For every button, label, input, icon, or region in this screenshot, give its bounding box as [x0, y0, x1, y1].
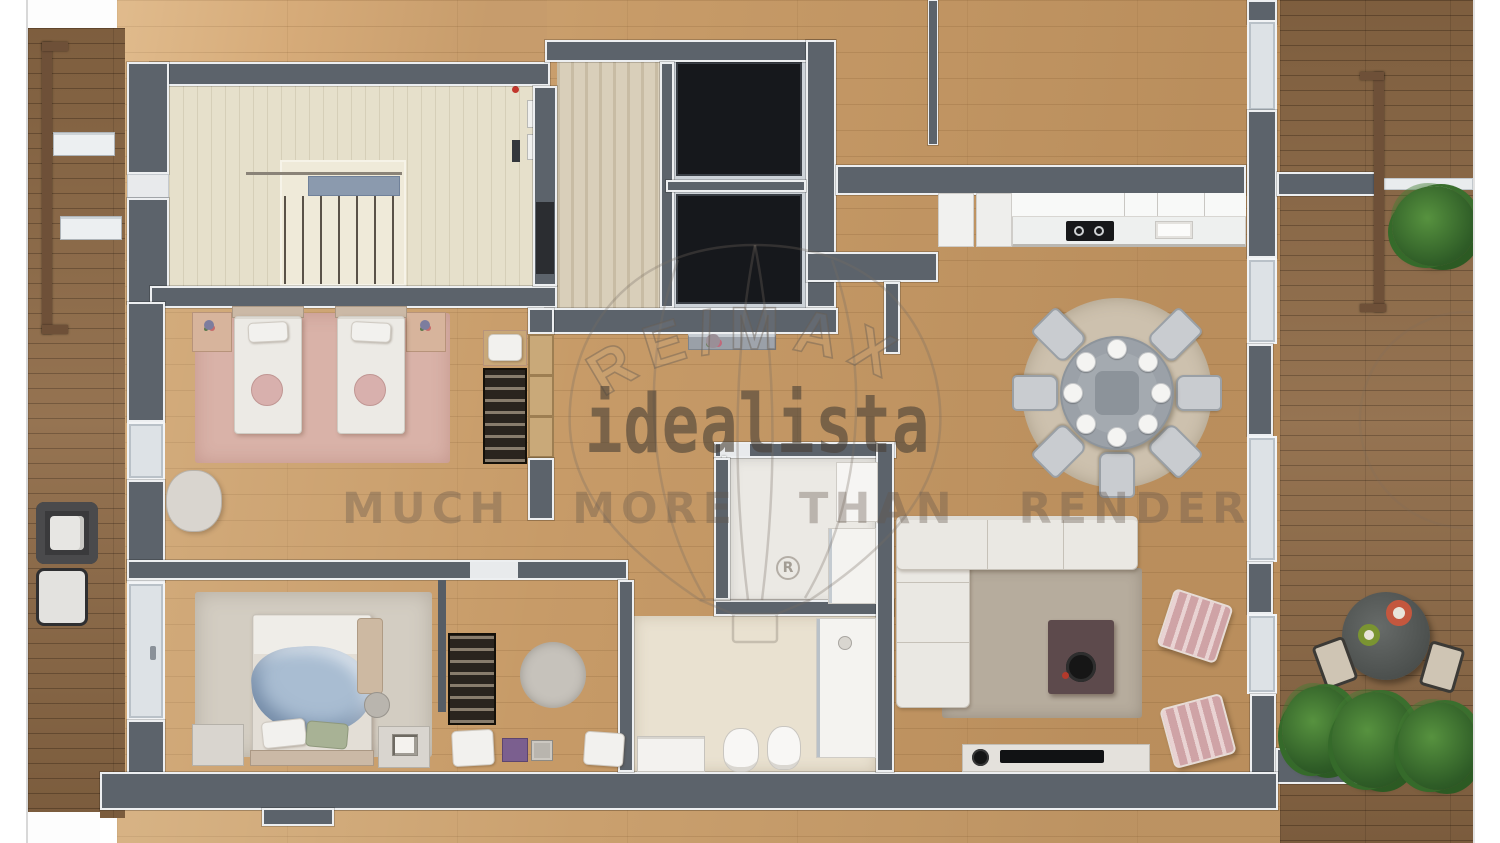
bed-pillow [351, 321, 392, 343]
table-plate-green [1358, 624, 1380, 646]
kitchen-cabinet-tall [976, 193, 1012, 247]
stacked-books [531, 740, 553, 761]
round-cushion [354, 374, 386, 406]
bed-side-bench [357, 618, 383, 694]
page-border-left [0, 0, 28, 843]
wall-east-2 [1247, 344, 1273, 436]
place-setting [1076, 352, 1096, 372]
place-setting [1138, 414, 1158, 434]
dining-table-center [1095, 371, 1139, 415]
elevator-shaft [672, 190, 806, 308]
shower-drain [838, 636, 852, 650]
wall-bath-east [876, 442, 894, 772]
bed-pillow [248, 321, 289, 343]
stair-handrail [246, 172, 402, 175]
ac-unit [53, 132, 115, 156]
armchair-cushion [50, 516, 84, 550]
wall-corridor-east-stub [884, 282, 900, 354]
wall-kids-east-upper [528, 308, 554, 334]
nightstand-art [392, 734, 418, 756]
wall-west-3 [127, 720, 165, 774]
dining-chair [1012, 375, 1058, 411]
page-border-right [1473, 0, 1500, 843]
window-east-2 [1247, 258, 1277, 344]
storage-box-purple [502, 738, 528, 762]
dining-chair [1099, 288, 1135, 334]
cooktop-burner [1074, 226, 1084, 236]
stair-landing [308, 176, 400, 196]
window-east-1 [1247, 20, 1277, 112]
wall-south-tab [262, 808, 334, 826]
neighbor-floor-top-strip [117, 0, 547, 62]
bed-pillow-green [305, 720, 349, 750]
ac-unit [60, 216, 122, 240]
slider-west-master [127, 582, 165, 720]
wall-south-main [100, 772, 1278, 810]
wall-top-stub [928, 0, 938, 145]
elevator-lobby-carpet [557, 62, 660, 308]
place-setting [1107, 427, 1127, 447]
record-player-dot [1062, 672, 1069, 679]
table-plate-red [1386, 600, 1412, 626]
elevator-shaft [672, 58, 806, 180]
record-player [1066, 652, 1096, 682]
wall-lobby-north [545, 40, 835, 62]
slider-handle [150, 646, 156, 660]
speaker [972, 749, 989, 766]
bath-vanity [637, 736, 705, 772]
window-east-4 [1247, 614, 1277, 694]
kitchen-cabinet-tall [938, 193, 974, 247]
dining-chair [1176, 375, 1222, 411]
screen-foot [1360, 72, 1384, 80]
window-west-kids [127, 422, 165, 480]
utility-panel [512, 140, 520, 162]
wall-kitchen-north [836, 165, 1246, 195]
double-bed-headboard [250, 750, 374, 766]
toilet [723, 728, 759, 772]
kids-room-pouf [166, 470, 222, 532]
wall-stairwell-west-upper [127, 62, 169, 174]
kitchen-upper-cabinets [1012, 193, 1246, 217]
wall-corridor-northeast [806, 252, 938, 282]
place-setting [1151, 383, 1171, 403]
wall-lobby-south [545, 308, 838, 334]
stairwell-door-opening [536, 202, 554, 274]
page-corner-top-left [28, 0, 117, 28]
wall-dressing-divider [438, 580, 446, 712]
place-setting [1138, 352, 1158, 372]
floor-plan-render: RE/MAX idealista MUCH MORE THAN RENDER R [0, 0, 1500, 843]
flower-vase [204, 320, 214, 330]
dressing-rug-round [520, 642, 586, 708]
floor-cushion [451, 729, 495, 767]
outdoor-round-table [1342, 592, 1430, 680]
potted-plant [1392, 186, 1476, 266]
shower-tray-small [828, 528, 876, 604]
wall-west-1 [127, 302, 165, 422]
terrace-railing [42, 325, 68, 334]
flower-arrangement [706, 334, 720, 348]
bidet [767, 726, 801, 770]
wall-stairwell-south [150, 286, 557, 308]
tv-flatscreen [1000, 750, 1104, 763]
hallway-shelf-unit [528, 334, 554, 458]
planter-plant [1398, 702, 1478, 790]
dining-chair [1099, 452, 1135, 498]
wall-east-cross [1247, 110, 1277, 258]
door-master-bedroom [470, 562, 518, 578]
open-wardrobe-master [448, 633, 496, 725]
outdoor-ottoman [36, 568, 88, 626]
window-east-3 [1247, 436, 1277, 562]
cooktop-burner [1094, 226, 1104, 236]
terrace-railing [42, 42, 52, 334]
round-stool [364, 692, 390, 718]
bed-pillow [261, 718, 308, 749]
wall-bedroom-divider [127, 560, 628, 580]
place-setting [1107, 339, 1127, 359]
wall-shower-bath-west [714, 458, 730, 600]
flower-vase [420, 320, 430, 330]
place-setting [1063, 383, 1083, 403]
page-corner-bottom-left [28, 812, 100, 843]
bath-sink-column [836, 462, 878, 522]
door-shower-bath [720, 444, 750, 456]
wall-stairwell-north [150, 62, 550, 86]
terrace-privacy-screen [1374, 72, 1384, 312]
sofa-main-section [896, 516, 1138, 570]
nightstand [192, 724, 244, 766]
stair-steps [284, 196, 402, 284]
terrace-railing [42, 42, 68, 51]
place-setting [1076, 414, 1096, 434]
console-table [688, 334, 776, 350]
wall-kids-east-lower [528, 458, 554, 520]
wall-terrace-divider-arm [1277, 172, 1377, 196]
floor-cushion [583, 731, 625, 768]
screen-foot [1360, 304, 1386, 312]
open-wardrobe-kids [483, 368, 527, 464]
round-cushion [251, 374, 283, 406]
door-terrace-stairwell [127, 174, 169, 198]
nightstand [406, 312, 446, 352]
kitchen-sink [1155, 221, 1193, 239]
wall-east-3 [1247, 562, 1273, 614]
wall-elevator-divider [666, 180, 806, 192]
utility-alarm-light [512, 86, 519, 93]
bench-pillow [488, 334, 522, 361]
nightstand [192, 312, 232, 352]
